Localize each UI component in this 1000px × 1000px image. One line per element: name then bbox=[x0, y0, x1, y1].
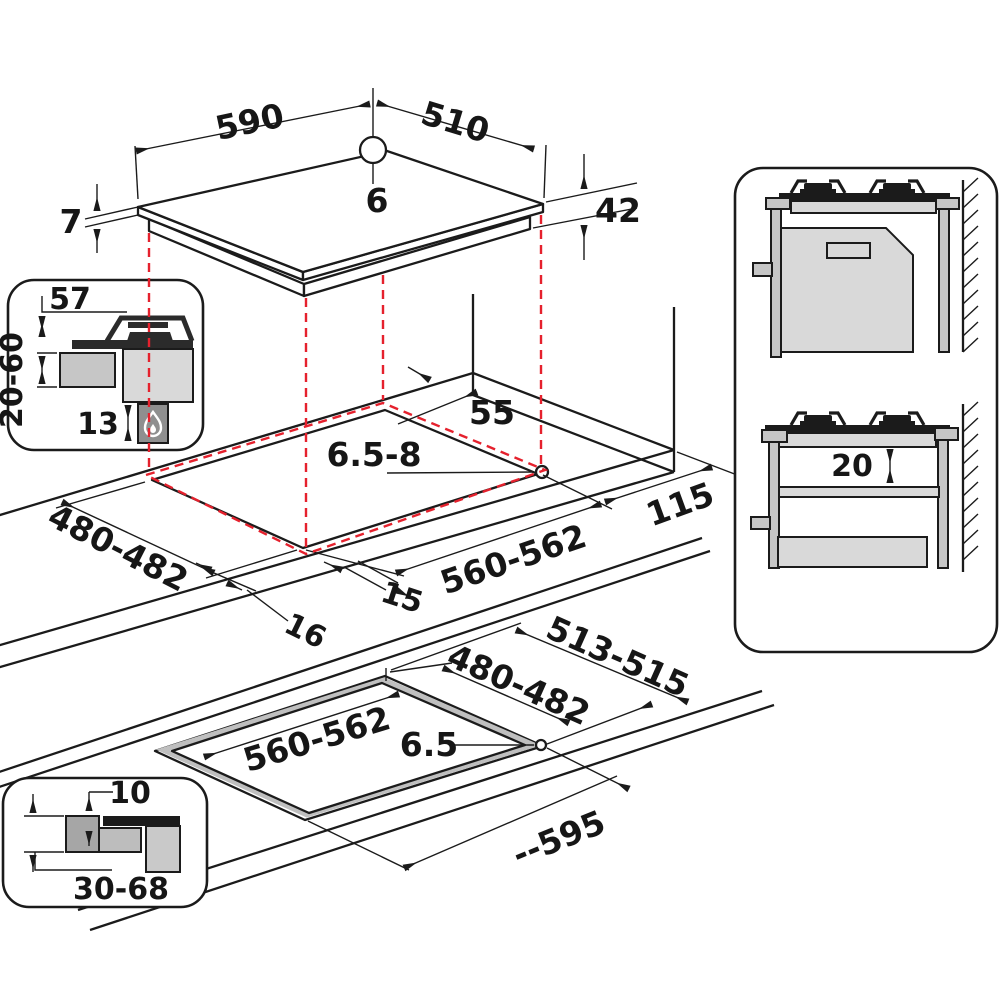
worktop-step-block bbox=[66, 816, 99, 852]
dim-built-in-depth: 42 bbox=[595, 191, 641, 230]
shelf bbox=[779, 487, 939, 497]
side-view-oven bbox=[753, 178, 978, 357]
diagram-stage: 590 510 6 7 42 57 20-60 13 55 6.5-8 480-… bbox=[0, 0, 1000, 1000]
hob-installation-diagram: 590 510 6 7 42 57 20-60 13 55 6.5-8 480-… bbox=[0, 0, 1000, 1000]
dim-worktop-thickness: 20-60 bbox=[0, 332, 30, 428]
dim-hob-width: 590 bbox=[212, 96, 287, 148]
dim-flush-worktop-thickness: 30-68 bbox=[73, 872, 169, 907]
hole-position-circle bbox=[360, 137, 386, 163]
left-post bbox=[771, 209, 781, 357]
dim-side-clearance: 115 bbox=[641, 474, 719, 534]
hob-glass-section bbox=[103, 816, 180, 826]
hob-glass-side bbox=[765, 425, 950, 433]
dim-cutout-depth-mid: 480-482 bbox=[42, 496, 195, 600]
wall-clearance-panel bbox=[735, 168, 997, 652]
hob-glass-top bbox=[138, 151, 543, 272]
gas-connection-tab bbox=[751, 517, 770, 529]
hob-body-side bbox=[791, 201, 936, 213]
dim-overhang-16: 16 bbox=[279, 607, 332, 657]
dim-rear-clearance: 55 bbox=[469, 393, 515, 432]
dim-shelf-clearance: 20 bbox=[831, 449, 873, 484]
dim-flush-max-width: --595 bbox=[507, 802, 611, 874]
isometric-hob-view bbox=[138, 137, 543, 296]
oven-vent bbox=[827, 243, 870, 258]
hob-bar-section bbox=[72, 340, 193, 349]
hob-glass-side bbox=[779, 193, 950, 201]
hob-body-section bbox=[146, 826, 180, 872]
left-clamp bbox=[766, 198, 790, 209]
cabinet-section bbox=[60, 353, 115, 387]
dim-glass-thickness: 7 bbox=[60, 202, 83, 241]
worktop-rebate-block bbox=[99, 828, 141, 852]
right-post bbox=[938, 440, 948, 568]
dim-screw-hole-mid: 6.5-8 bbox=[326, 435, 421, 474]
dim-flush-cutout-width: 560-562 bbox=[239, 698, 395, 780]
hob-body-side bbox=[779, 433, 936, 447]
dim-hob-depth: 510 bbox=[417, 93, 494, 150]
screw-hole-marker-flush bbox=[536, 740, 546, 750]
hob-box-section bbox=[123, 349, 193, 402]
side-view-shelf bbox=[751, 402, 978, 572]
right-post bbox=[939, 209, 949, 352]
dim-burner-height: 57 bbox=[49, 282, 91, 317]
drawer bbox=[778, 537, 927, 567]
right-clamp bbox=[935, 428, 958, 440]
right-clamp bbox=[936, 198, 959, 209]
dim-screw-hole-flush: 6.5 bbox=[400, 725, 458, 764]
dim-clearance-below: 13 bbox=[77, 407, 119, 442]
gas-connection-tab bbox=[753, 263, 772, 276]
dim-cutout-width-mid: 560-562 bbox=[435, 516, 591, 602]
dim-flush-step-depth: 10 bbox=[109, 776, 151, 811]
dim-hole-offset: 6 bbox=[366, 181, 389, 220]
left-clamp bbox=[762, 430, 787, 442]
dim-overhang-15: 15 bbox=[377, 575, 428, 621]
